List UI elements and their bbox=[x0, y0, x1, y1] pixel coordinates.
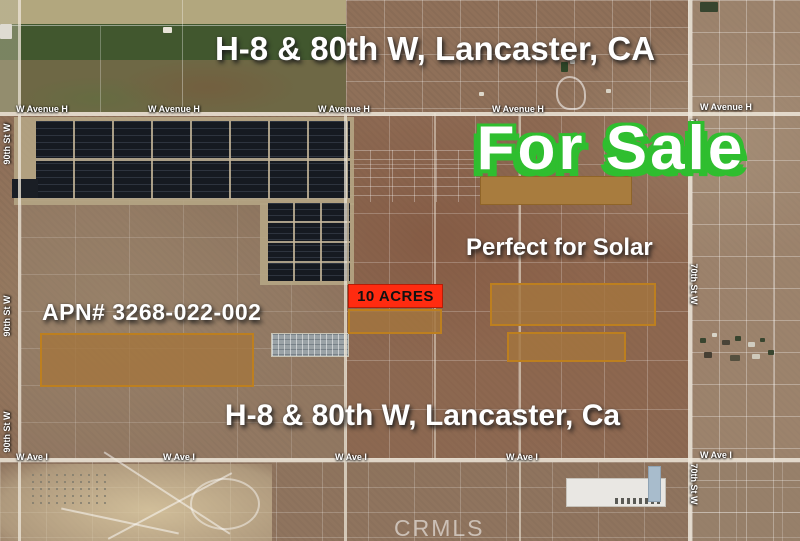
street-label-ave-i: W Ave I bbox=[335, 452, 367, 462]
lot-highlight-apn bbox=[40, 333, 254, 387]
solar-farm-panels bbox=[268, 203, 350, 281]
field-boundary-line bbox=[0, 25, 346, 26]
road-ave-i bbox=[0, 458, 800, 462]
listing-flyer-map: 10 ACRES W Avenue H W Avenue H W Avenue … bbox=[0, 0, 800, 541]
street-label-70th-st-w: 70th St W bbox=[689, 454, 699, 514]
street-label-ave-i: W Ave I bbox=[700, 450, 732, 460]
street-label-ave-i: W Ave I bbox=[163, 452, 195, 462]
house-speck bbox=[704, 352, 712, 358]
lot-highlight-subject bbox=[348, 309, 442, 334]
street-label-avenue-h: W Avenue H bbox=[318, 104, 370, 114]
greenhouse-speck bbox=[0, 24, 12, 39]
street-label-90th-st-w: 90th St W bbox=[2, 114, 12, 174]
house-speck bbox=[748, 342, 755, 347]
house-speck bbox=[752, 354, 760, 359]
street-label-avenue-h: W Avenue H bbox=[148, 104, 200, 114]
solar-pitch-text: Perfect for Solar bbox=[466, 234, 653, 262]
street-label-90th-st-w: 90th St W bbox=[2, 286, 12, 346]
solar-farm-panels-small bbox=[12, 179, 38, 198]
small-solar-array bbox=[271, 333, 349, 357]
for-sale-banner: For Sale bbox=[436, 113, 786, 184]
road-minor bbox=[774, 0, 775, 460]
street-label-avenue-h: W Avenue H bbox=[16, 104, 68, 114]
building-speck bbox=[606, 89, 611, 93]
house-speck bbox=[712, 333, 717, 337]
street-label-70th-st-w: 70th St W bbox=[689, 254, 699, 314]
street-label-90th-st-w: 90th St W bbox=[2, 402, 12, 462]
lot-highlight-2 bbox=[490, 283, 656, 326]
apn-label: APN# 3268-022-002 bbox=[42, 299, 261, 326]
acres-badge-label: 10 ACRES bbox=[357, 288, 434, 305]
tract-street-curve bbox=[190, 478, 260, 530]
driveway-curve bbox=[556, 76, 586, 110]
vegetation-speck bbox=[700, 2, 718, 12]
mls-watermark: CRMLS bbox=[394, 515, 485, 541]
building-speck bbox=[479, 92, 484, 96]
housing-tract-roofs bbox=[30, 472, 112, 506]
road-80th-st-w bbox=[344, 113, 347, 541]
tree-speck bbox=[735, 336, 741, 341]
blue-roof-building bbox=[648, 466, 661, 502]
tree-speck bbox=[768, 350, 774, 355]
tree-speck bbox=[700, 338, 706, 343]
street-label-ave-i: W Ave I bbox=[16, 452, 48, 462]
listing-title-bottom: H-8 & 80th W, Lancaster, Ca bbox=[45, 399, 800, 433]
lot-highlight-3 bbox=[507, 332, 626, 362]
street-label-ave-i: W Ave I bbox=[506, 452, 538, 462]
street-label-avenue-h: W Avenue H bbox=[700, 102, 752, 112]
tree-speck bbox=[760, 338, 765, 342]
solar-farm-panels bbox=[36, 121, 350, 199]
acres-badge: 10 ACRES bbox=[348, 284, 443, 308]
house-speck bbox=[730, 355, 740, 361]
listing-title-top: H-8 & 80th W, Lancaster, CA bbox=[70, 30, 800, 68]
house-speck bbox=[722, 340, 730, 345]
